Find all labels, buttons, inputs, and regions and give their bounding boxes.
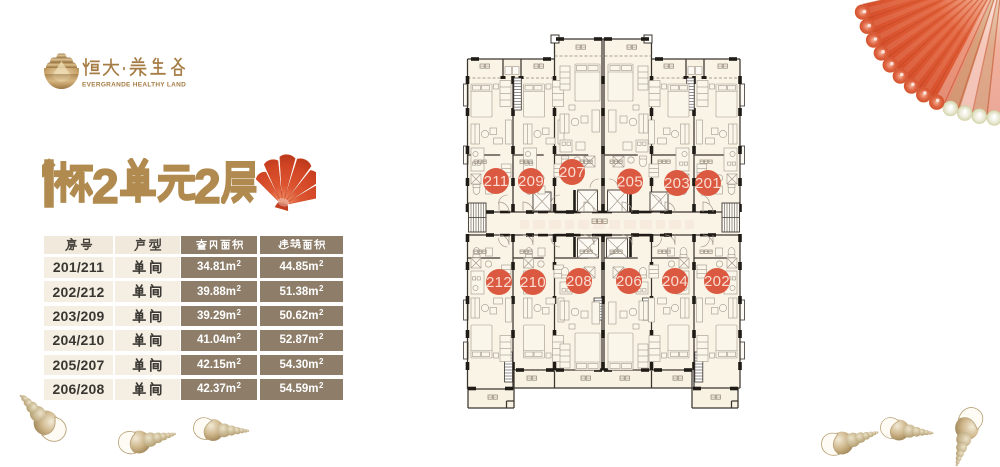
svg-text:EVERGRANDE HEALTHY LAND: EVERGRANDE HEALTHY LAND xyxy=(82,82,186,89)
svg-text:212: 212 xyxy=(486,274,512,291)
svg-text:206: 206 xyxy=(616,273,642,290)
svg-text:204: 204 xyxy=(662,273,688,290)
svg-text:202: 202 xyxy=(704,273,730,290)
svg-text:203: 203 xyxy=(664,175,690,192)
svg-text:207: 207 xyxy=(559,164,585,181)
svg-text:210: 210 xyxy=(520,274,546,291)
svg-text:211: 211 xyxy=(484,173,509,190)
svg-text:2: 2 xyxy=(194,161,221,212)
svg-text:201: 201 xyxy=(695,175,721,192)
svg-text:208: 208 xyxy=(566,273,592,290)
svg-text:205: 205 xyxy=(617,174,643,191)
svg-text:209: 209 xyxy=(518,173,544,190)
svg-text:2: 2 xyxy=(92,161,119,212)
